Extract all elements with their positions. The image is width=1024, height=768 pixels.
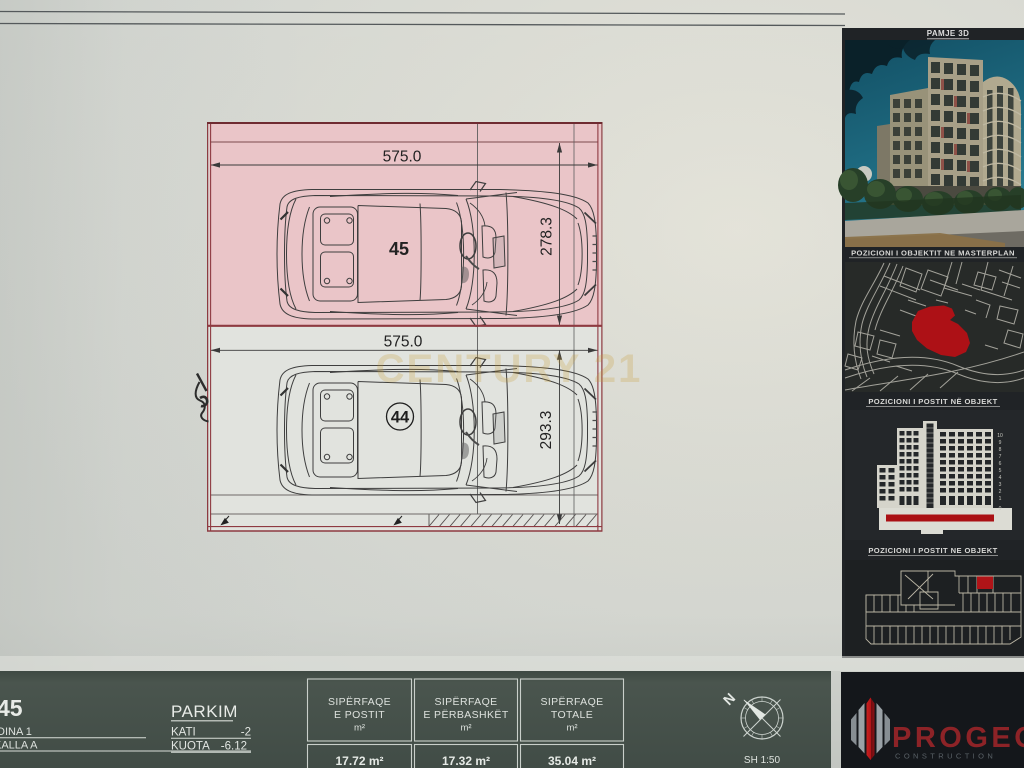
svg-text:6: 6	[999, 461, 1002, 467]
svg-text:SIPËRFAQE: SIPËRFAQE	[328, 696, 391, 708]
svg-text:TOTALE: TOTALE	[551, 709, 593, 721]
svg-text:293.3: 293.3	[538, 411, 555, 450]
svg-text:m²: m²	[354, 723, 365, 734]
svg-text:SIPËRFAQE: SIPËRFAQE	[540, 696, 603, 708]
svg-text:CENTURY 21: CENTURY 21	[376, 347, 643, 391]
svg-text:KALLA A: KALLA A	[0, 740, 38, 752]
svg-text:2: 2	[999, 489, 1002, 495]
svg-text:35.04 m²: 35.04 m²	[548, 754, 596, 768]
svg-text:7: 7	[999, 454, 1002, 460]
svg-text:575.0: 575.0	[383, 149, 422, 166]
svg-text:E POSTIT: E POSTIT	[334, 709, 385, 721]
svg-text:44: 44	[391, 409, 410, 427]
svg-text:10: 10	[997, 433, 1003, 439]
svg-text:45: 45	[0, 695, 23, 721]
svg-text:m²: m²	[460, 723, 471, 734]
svg-text:3: 3	[999, 482, 1002, 488]
svg-text:m²: m²	[566, 723, 577, 734]
svg-text:PROGEO: PROGEO	[892, 722, 1024, 754]
svg-text:POZICIONI I POSTIT NE OBJEKT: POZICIONI I POSTIT NE OBJEKT	[868, 546, 997, 555]
svg-text:SH 1:50: SH 1:50	[744, 755, 781, 766]
svg-text:9: 9	[999, 440, 1002, 446]
svg-text:KATI: KATI	[171, 727, 196, 739]
svg-text:POZICIONI I OBJEKTIT NE MASTER: POZICIONI I OBJEKTIT NE MASTERPLAN	[851, 249, 1015, 258]
svg-text:-2: -2	[241, 727, 251, 739]
svg-text:0: 0	[999, 506, 1002, 512]
svg-text:PARKIM: PARKIM	[171, 702, 238, 721]
svg-text:278.3: 278.3	[539, 217, 556, 256]
svg-text:8: 8	[999, 447, 1002, 453]
svg-text:CONSTRUCTION: CONSTRUCTION	[895, 752, 996, 761]
svg-text:5: 5	[999, 468, 1002, 474]
svg-text:E PËRBASHKËT: E PËRBASHKËT	[423, 709, 509, 721]
svg-text:17.72 m²: 17.72 m²	[335, 754, 383, 768]
svg-text:-6.12: -6.12	[221, 741, 247, 753]
svg-text:PAMJE 3D: PAMJE 3D	[927, 29, 970, 38]
svg-text:SIPËRFAQE: SIPËRFAQE	[434, 696, 497, 708]
svg-text:DINA 1: DINA 1	[0, 726, 32, 738]
svg-text:1: 1	[999, 496, 1002, 502]
svg-text:4: 4	[999, 475, 1002, 481]
svg-text:KUOTA: KUOTA	[171, 741, 210, 753]
svg-text:17.32 m²: 17.32 m²	[442, 754, 490, 768]
svg-text:POZICIONI I POSTIT NË OBJEKT: POZICIONI I POSTIT NË OBJEKT	[868, 397, 997, 406]
svg-text:45: 45	[389, 239, 409, 259]
